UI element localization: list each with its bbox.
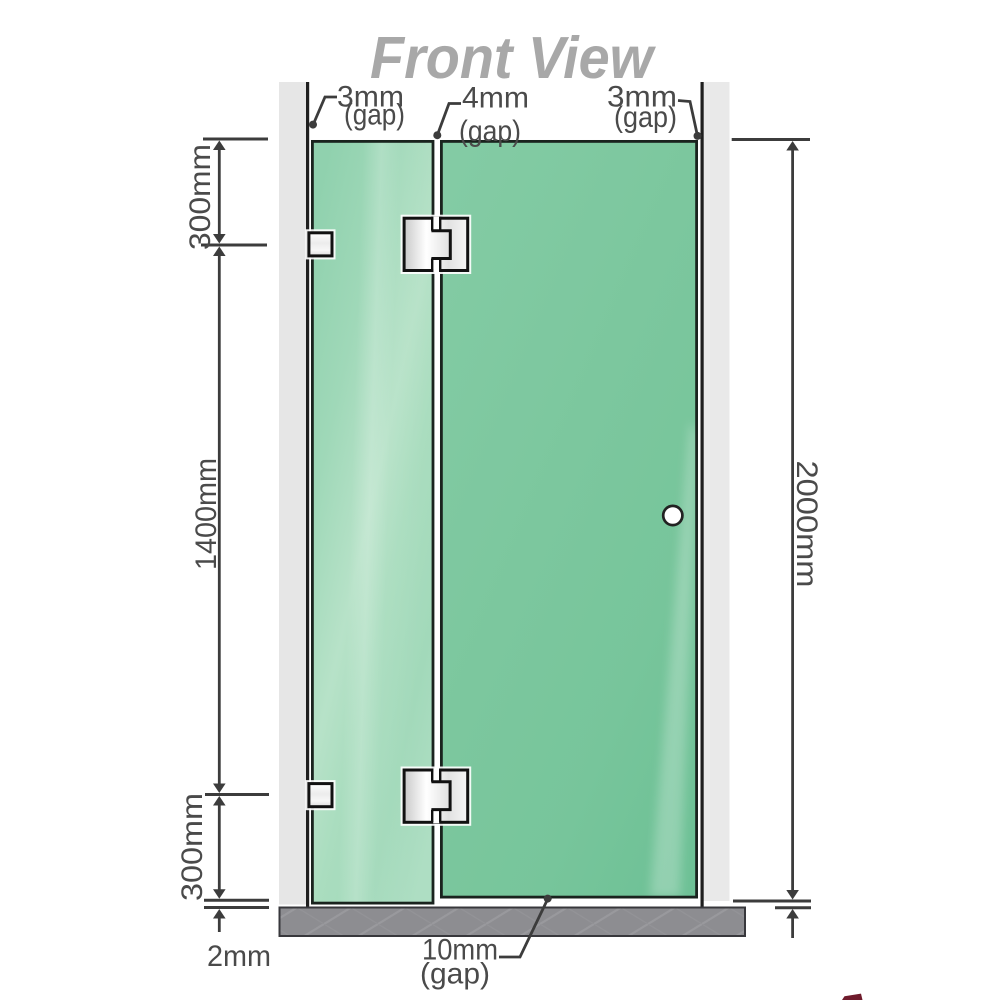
svg-text:2mm: 2mm xyxy=(207,940,271,973)
svg-text:1400mm: 1400mm xyxy=(190,458,223,570)
svg-text:(gap): (gap) xyxy=(459,115,521,148)
svg-text:300mm: 300mm xyxy=(176,793,209,901)
svg-text:300mm: 300mm xyxy=(184,144,217,250)
svg-text:(gap): (gap) xyxy=(614,101,677,134)
svg-text:2000mm: 2000mm xyxy=(790,461,823,588)
svg-text:(gap): (gap) xyxy=(344,99,405,132)
svg-text:4mm: 4mm xyxy=(462,82,529,115)
svg-text:(gap): (gap) xyxy=(420,958,490,991)
